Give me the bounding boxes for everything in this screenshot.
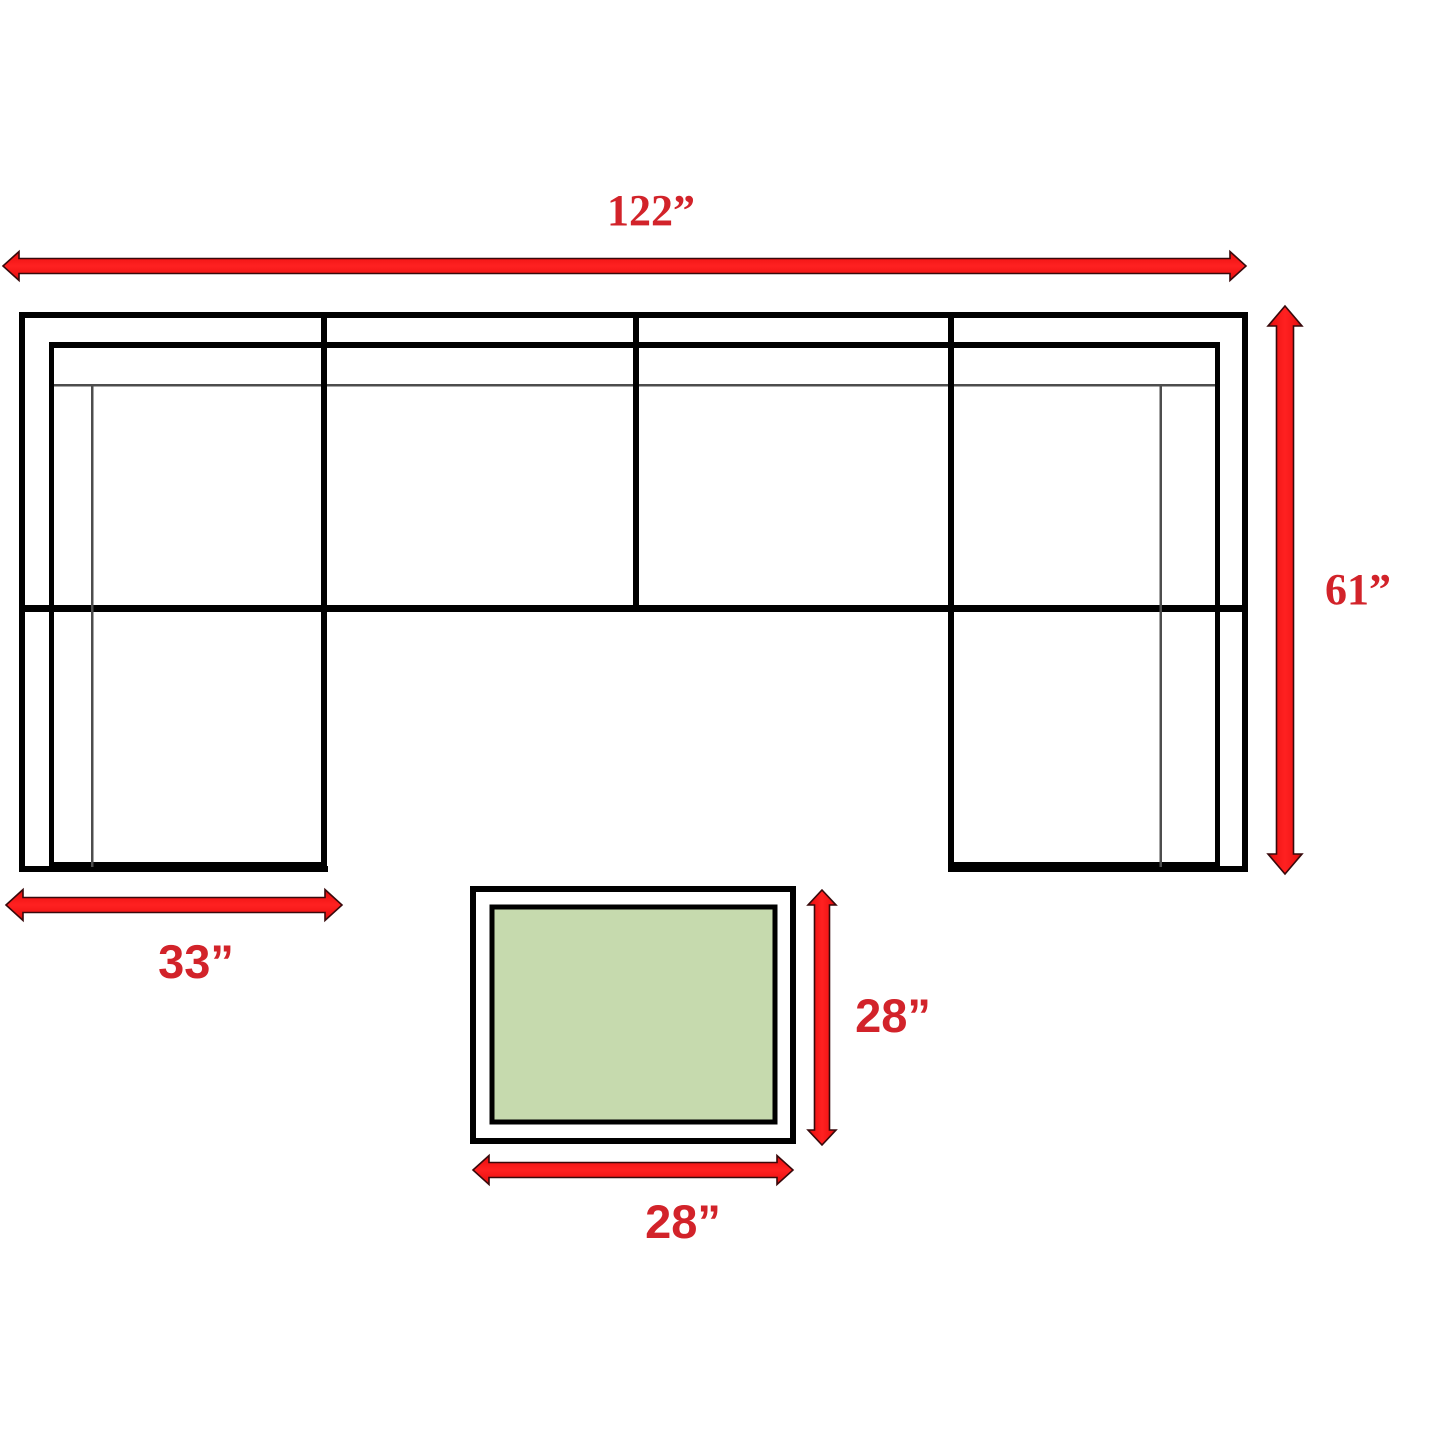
svg-text:28”: 28” xyxy=(855,989,931,1042)
svg-text:61”: 61” xyxy=(1325,565,1391,614)
svg-text:33”: 33” xyxy=(158,935,234,988)
svg-text:122”: 122” xyxy=(607,186,695,235)
svg-text:28”: 28” xyxy=(645,1195,721,1248)
